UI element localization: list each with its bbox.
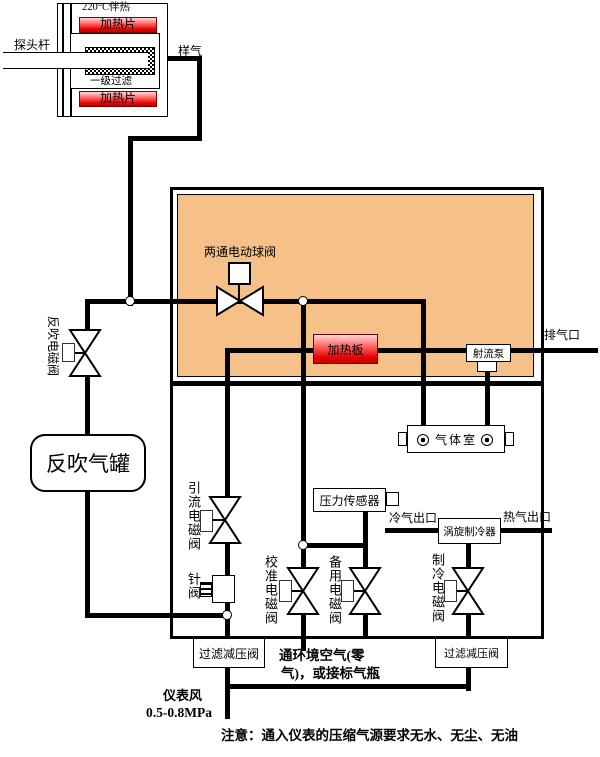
- pipe-backflush-down: [85, 375, 90, 618]
- probe-temp-label: 220°C伴热: [82, 2, 130, 14]
- drain-valve-label: 引流电磁阀: [185, 481, 200, 551]
- pipe-backflush-bottom: [85, 613, 230, 618]
- filter-regulator-right-label: 过滤减压阀: [444, 645, 499, 661]
- heater-strip-bottom: 加热片: [79, 91, 157, 107]
- two-way-ball-valve-label: 两通电动球阀: [204, 246, 276, 260]
- junction-sample-branch: [298, 296, 308, 306]
- instrument-air-pressure: 0.5-0.8MPa: [146, 705, 212, 721]
- pressure-sensor-connector: [386, 492, 399, 506]
- filter-regulator-right: 过滤减压阀: [435, 638, 508, 668]
- valve-symbol-backflush: [69, 329, 101, 377]
- backflush-tank-label: 反吹气罐: [46, 448, 130, 478]
- cold-air-outlet-label: 冷气出口: [389, 512, 437, 526]
- ambient-air-note-line2: 气)，或接标气瓶: [281, 666, 380, 682]
- pipe-sample-drop-2: [128, 136, 133, 306]
- valve-symbol-calibration: [287, 567, 319, 615]
- vortex-cooler-label: 涡旋制冷器: [443, 524, 496, 539]
- heater-strip-top-label: 加热片: [100, 18, 136, 32]
- calibration-valve-label: 校准电磁阀: [262, 555, 277, 625]
- pipe-hot-outlet: [499, 528, 552, 533]
- pipe-air-manifold: [225, 684, 471, 689]
- pressure-sensor-label: 压力传感器: [319, 492, 379, 509]
- sample-gas-label: 样气: [178, 45, 202, 59]
- ambient-air-note-line1: 通环境空气(零: [279, 648, 365, 664]
- valve-symbol-backup: [349, 567, 381, 615]
- heating-plate-label: 加热板: [327, 341, 363, 358]
- gas-chamber-tab-right: [505, 432, 514, 446]
- pipe-chamber-inlet: [421, 299, 426, 431]
- pipe-drive-air-down-2: [225, 543, 230, 577]
- valve-symbol-drain: [209, 496, 241, 544]
- pipe-branch-vertical: [301, 301, 306, 569]
- jet-pump-label: 射流泵: [473, 346, 505, 361]
- sample-conditioning-diagram: 加热片 加热片 220°C伴热 一级过滤 探头杆 样气 两通电动球阀 反吹电磁阀…: [0, 0, 600, 757]
- pipe-sample-drop-1: [197, 56, 202, 141]
- junction-sample-backflush: [125, 296, 135, 306]
- gas-chamber-port-inlet: [417, 434, 429, 446]
- pressure-sensor: 压力传感器: [313, 488, 386, 512]
- pipe-backup-bottom: [363, 613, 368, 638]
- vortex-cooler: 涡旋制冷器: [438, 518, 501, 544]
- cooling-valve-label: 制冷电磁阀: [429, 553, 444, 623]
- compressed-air-note: 注意：通入仪表的压缩气源要求无水、无尘、无油: [221, 728, 518, 744]
- pipe-sensor-drop: [363, 510, 368, 546]
- needle-valve-label: 针阀: [185, 572, 200, 600]
- junction-air-split: [222, 610, 232, 620]
- pipe-sample-jog: [128, 136, 202, 141]
- needle-valve-stem: [200, 582, 212, 597]
- instrument-air-label: 仪表风: [163, 689, 202, 704]
- jet-pump-suction: [477, 361, 497, 372]
- valve-symbol-cooling: [452, 567, 484, 615]
- pipe-drive-air-down-1: [225, 348, 230, 499]
- pipe-cold-outlet: [385, 528, 438, 533]
- ball-valve-actuator: [228, 262, 251, 285]
- backflush-tank: 反吹气罐: [30, 434, 146, 492]
- gas-chamber-port-outlet: [481, 434, 493, 446]
- probe-rod-label: 探头杆: [14, 39, 50, 53]
- heating-plate: 加热板: [313, 334, 378, 364]
- backflush-valve-label: 反吹电磁阀: [45, 316, 59, 388]
- heater-strip-top: 加热片: [79, 17, 157, 33]
- exhaust-outlet-label: 排气口: [544, 329, 580, 343]
- pipe-cooler-down: [466, 542, 471, 569]
- backup-valve-label: 备用电磁阀: [326, 555, 341, 625]
- pipe-cal-backup-link: [301, 543, 365, 548]
- valve-symbol-two-way-ball: [216, 286, 264, 316]
- hot-air-outlet-label: 热气出口: [503, 511, 551, 525]
- filter-stage-label: 一级过滤: [90, 76, 132, 88]
- needle-valve-body: [212, 575, 235, 603]
- junction-cal-backup: [298, 540, 308, 550]
- heater-strip-bottom-label: 加热片: [100, 92, 136, 106]
- probe-rod: [3, 52, 148, 69]
- filter-regulator-left-label: 过滤减压阀: [199, 645, 259, 662]
- pipe-calibration-inlet: [301, 613, 306, 651]
- filter-regulator-left: 过滤减压阀: [193, 638, 265, 668]
- pipe-backup-top: [363, 543, 368, 569]
- gas-chamber-label: 气体室: [435, 431, 477, 448]
- pipe-exhaust: [509, 348, 598, 353]
- gas-chamber-tab-left: [398, 432, 407, 446]
- pipe-cooling-valve-out: [466, 613, 471, 640]
- jet-pump: 射流泵: [466, 344, 511, 362]
- pipe-backflush-top: [85, 299, 90, 331]
